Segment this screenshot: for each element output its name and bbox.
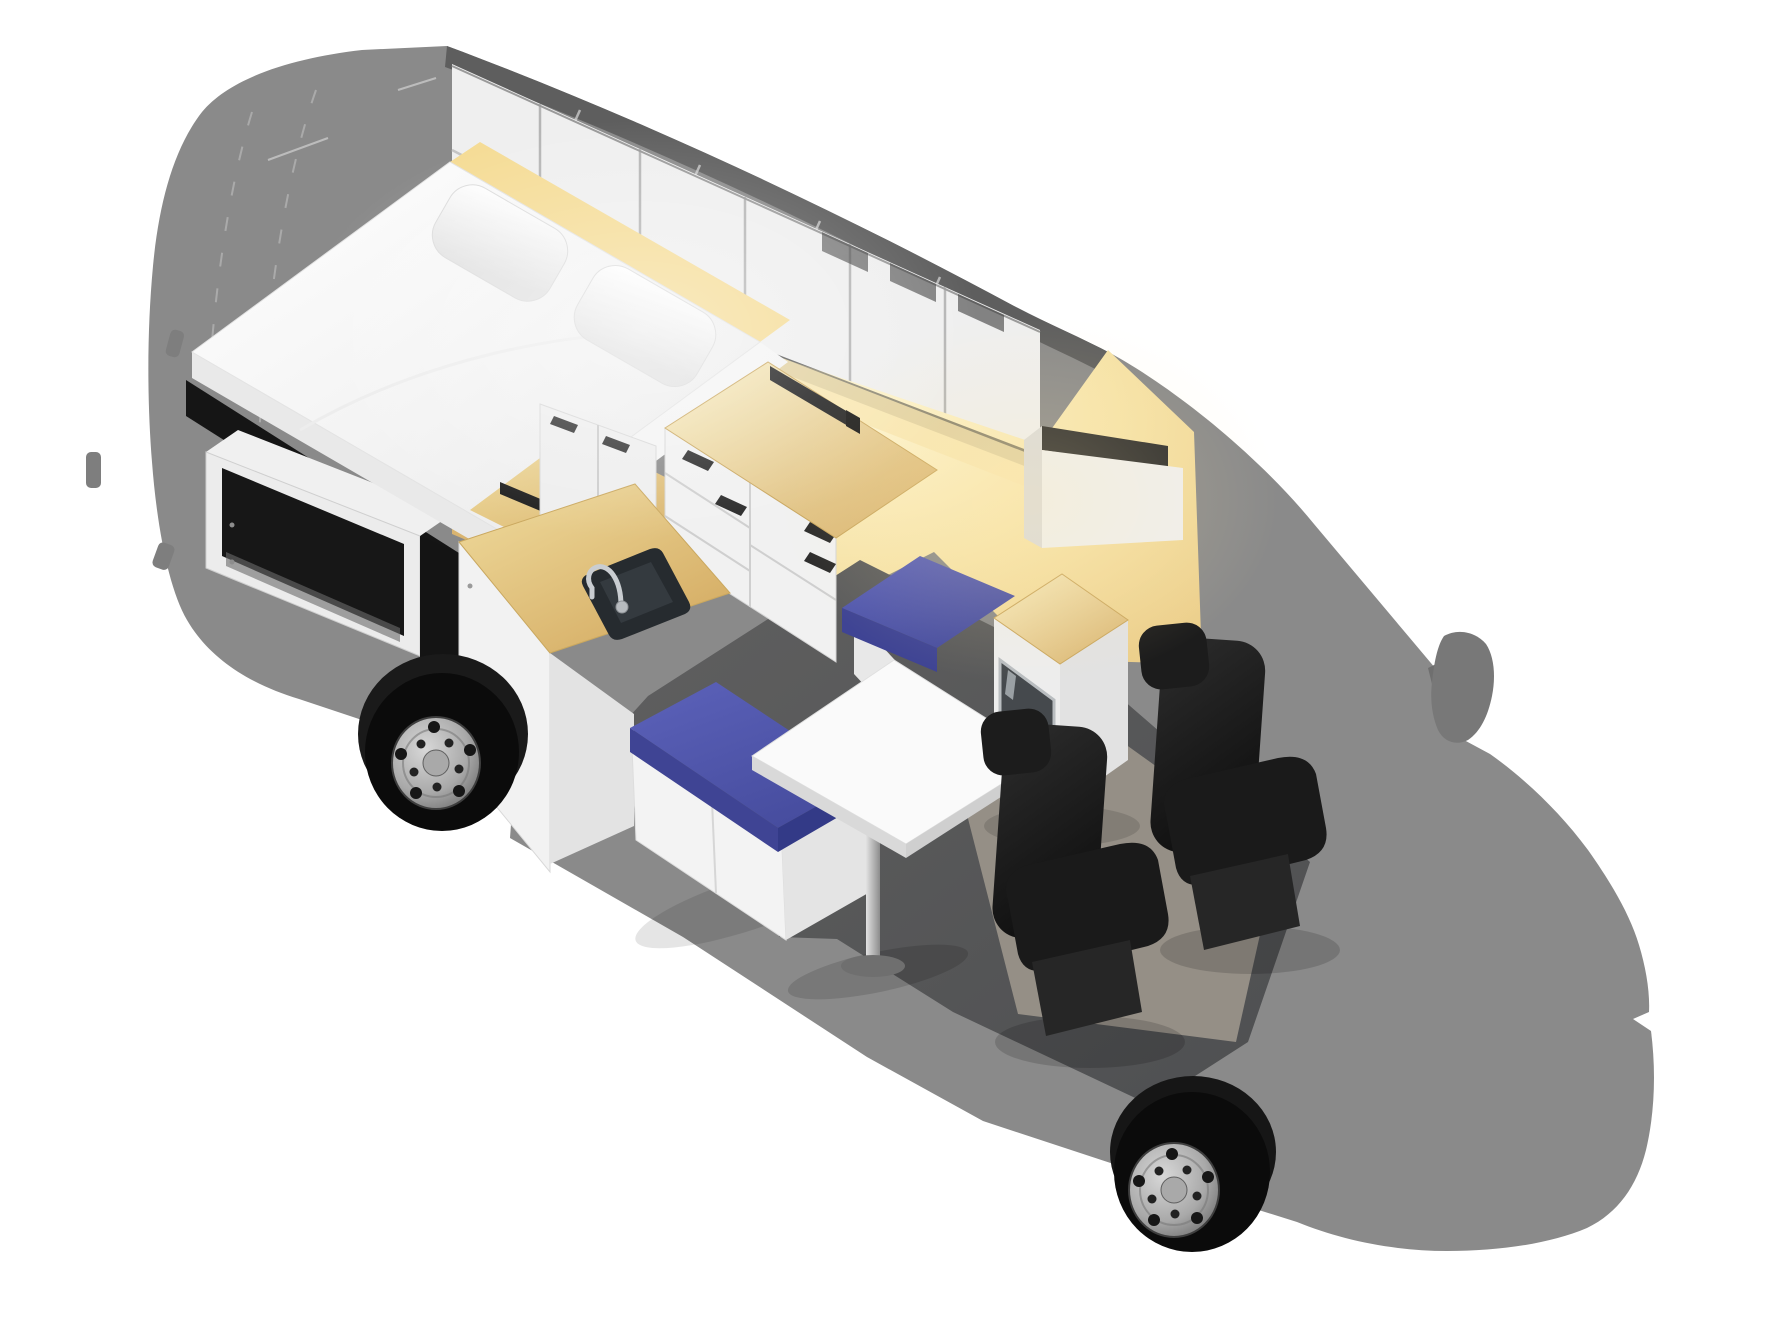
rear-door-handle [86, 452, 101, 488]
passenger-headrest [979, 707, 1053, 778]
table-base [841, 955, 905, 977]
scene-canvas [0, 0, 1781, 1336]
warm-light-glow [780, 315, 1280, 685]
campervan-cutaway-render [0, 0, 1781, 1336]
screw [468, 584, 473, 589]
screw [230, 523, 235, 528]
hub-cap [1161, 1177, 1187, 1203]
hub-cap [423, 750, 449, 776]
screw [230, 560, 235, 565]
